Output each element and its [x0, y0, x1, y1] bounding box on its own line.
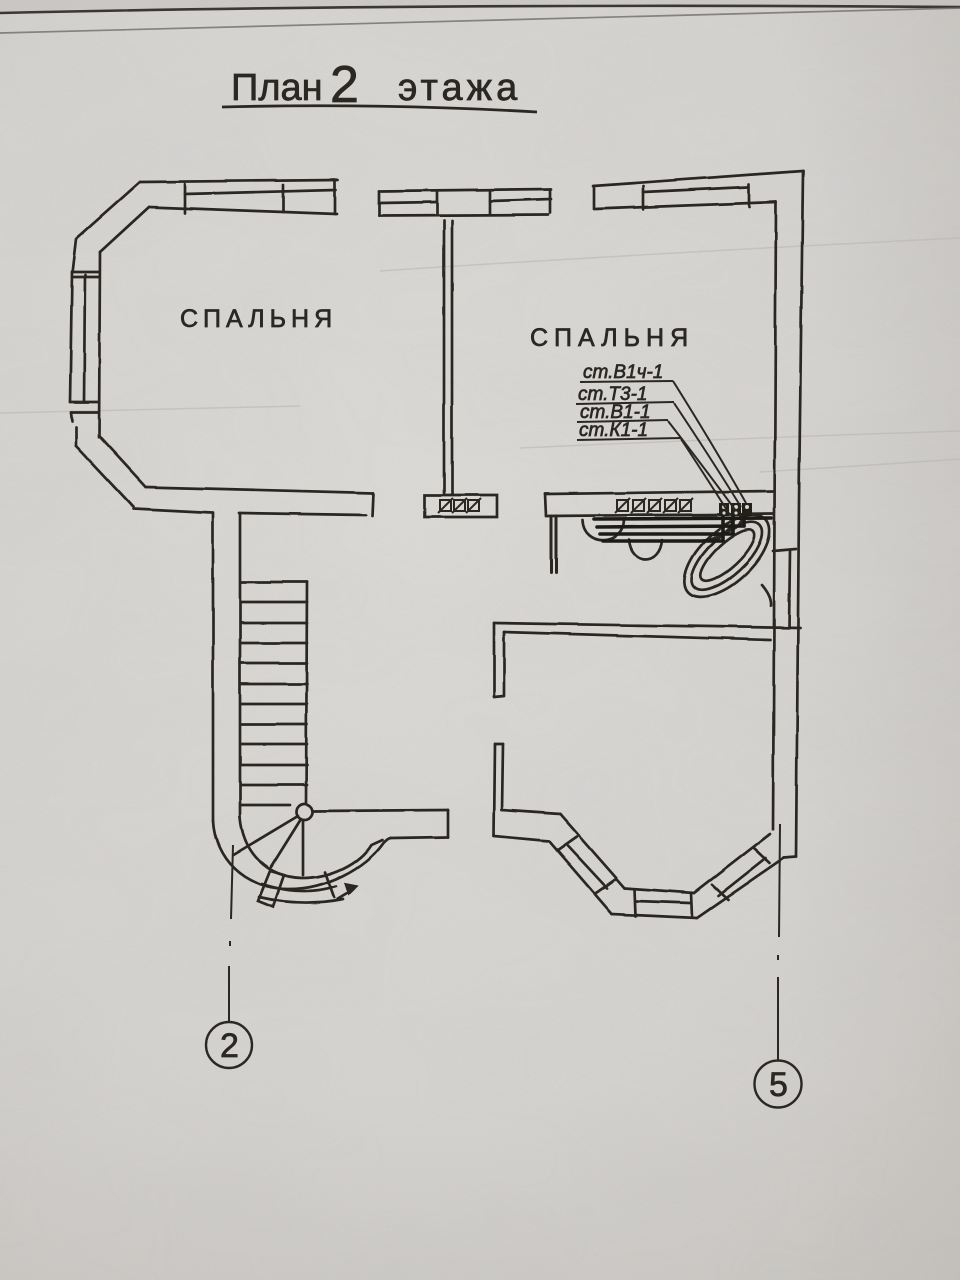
svg-text:этажа: этажа: [398, 67, 521, 109]
svg-text:ст.В1ч-1: ст.В1ч-1: [583, 362, 663, 383]
svg-text:5: 5: [769, 1066, 788, 1104]
svg-text:План: План: [231, 67, 323, 109]
svg-text:2: 2: [220, 1027, 239, 1065]
svg-text:ст.К1-1: ст.К1-1: [579, 420, 648, 441]
svg-text:СПАЛЬНЯ: СПАЛЬНЯ: [180, 305, 337, 333]
svg-text:СПАЛЬНЯ: СПАЛЬНЯ: [530, 324, 694, 352]
